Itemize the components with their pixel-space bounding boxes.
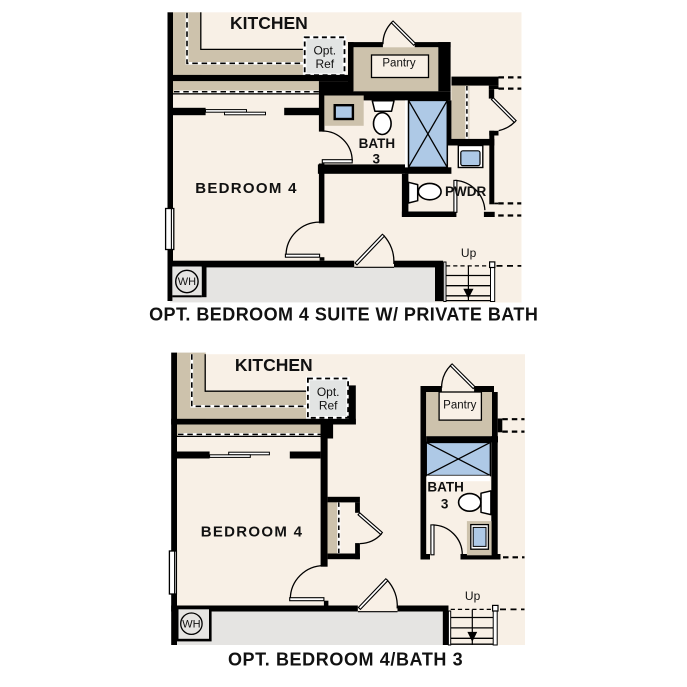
svg-text:PWDR: PWDR	[445, 184, 486, 199]
svg-text:BEDROOM 4: BEDROOM 4	[201, 524, 304, 541]
svg-text:WH: WH	[178, 276, 196, 288]
svg-text:3: 3	[373, 151, 381, 166]
svg-text:Up: Up	[461, 246, 477, 260]
svg-text:3: 3	[441, 497, 449, 512]
svg-text:BEDROOM 4: BEDROOM 4	[195, 180, 298, 197]
svg-text:KITCHEN: KITCHEN	[235, 355, 313, 375]
svg-text:Ref: Ref	[315, 57, 334, 71]
svg-text:Up: Up	[465, 589, 481, 603]
svg-text:Pantry: Pantry	[443, 399, 476, 411]
svg-text:WH: WH	[182, 618, 200, 630]
svg-text:BATH: BATH	[427, 479, 464, 494]
svg-text:OPT. BEDROOM 4/BATH 3: OPT. BEDROOM 4/BATH 3	[228, 650, 463, 670]
svg-text:Opt.: Opt.	[317, 385, 340, 399]
svg-text:Opt.: Opt.	[313, 44, 336, 58]
svg-text:Ref: Ref	[319, 399, 338, 413]
svg-text:BATH: BATH	[359, 136, 396, 151]
svg-text:Pantry: Pantry	[382, 57, 415, 69]
svg-text:KITCHEN: KITCHEN	[230, 13, 308, 33]
svg-text:OPT. BEDROOM 4 SUITE W/ PRIVAT: OPT. BEDROOM 4 SUITE W/ PRIVATE BATH	[149, 305, 538, 325]
